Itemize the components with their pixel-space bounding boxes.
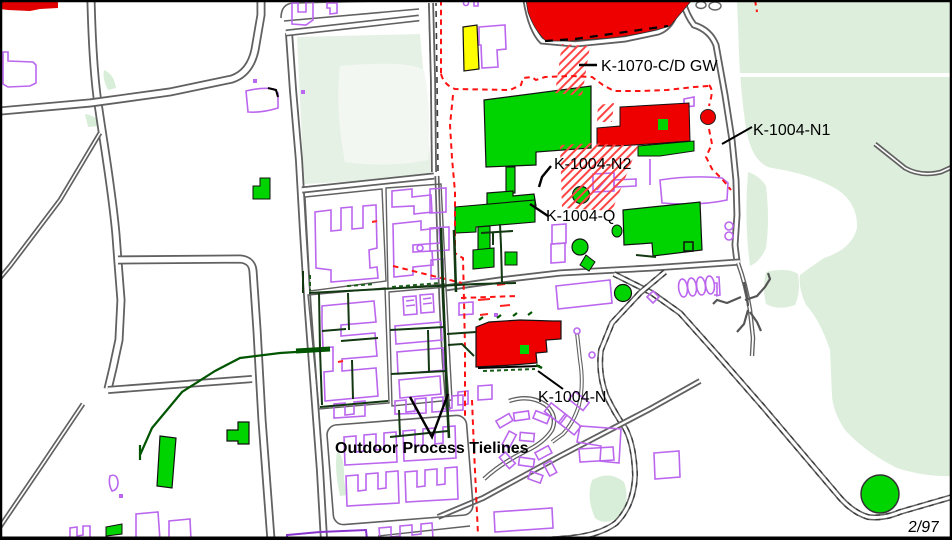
svg-text:K-1004-N2: K-1004-N2 [554,156,631,173]
svg-text:2/97: 2/97 [907,518,940,536]
svg-text:K-1004-Q: K-1004-Q [546,208,615,225]
svg-text:Outdoor Process Tielines: Outdoor Process Tielines [335,440,529,457]
svg-text:K-1004-N: K-1004-N [538,389,606,406]
svg-text:K-1070-C/D GW: K-1070-C/D GW [601,58,718,75]
svg-text:K-1004-N1: K-1004-N1 [753,122,830,139]
